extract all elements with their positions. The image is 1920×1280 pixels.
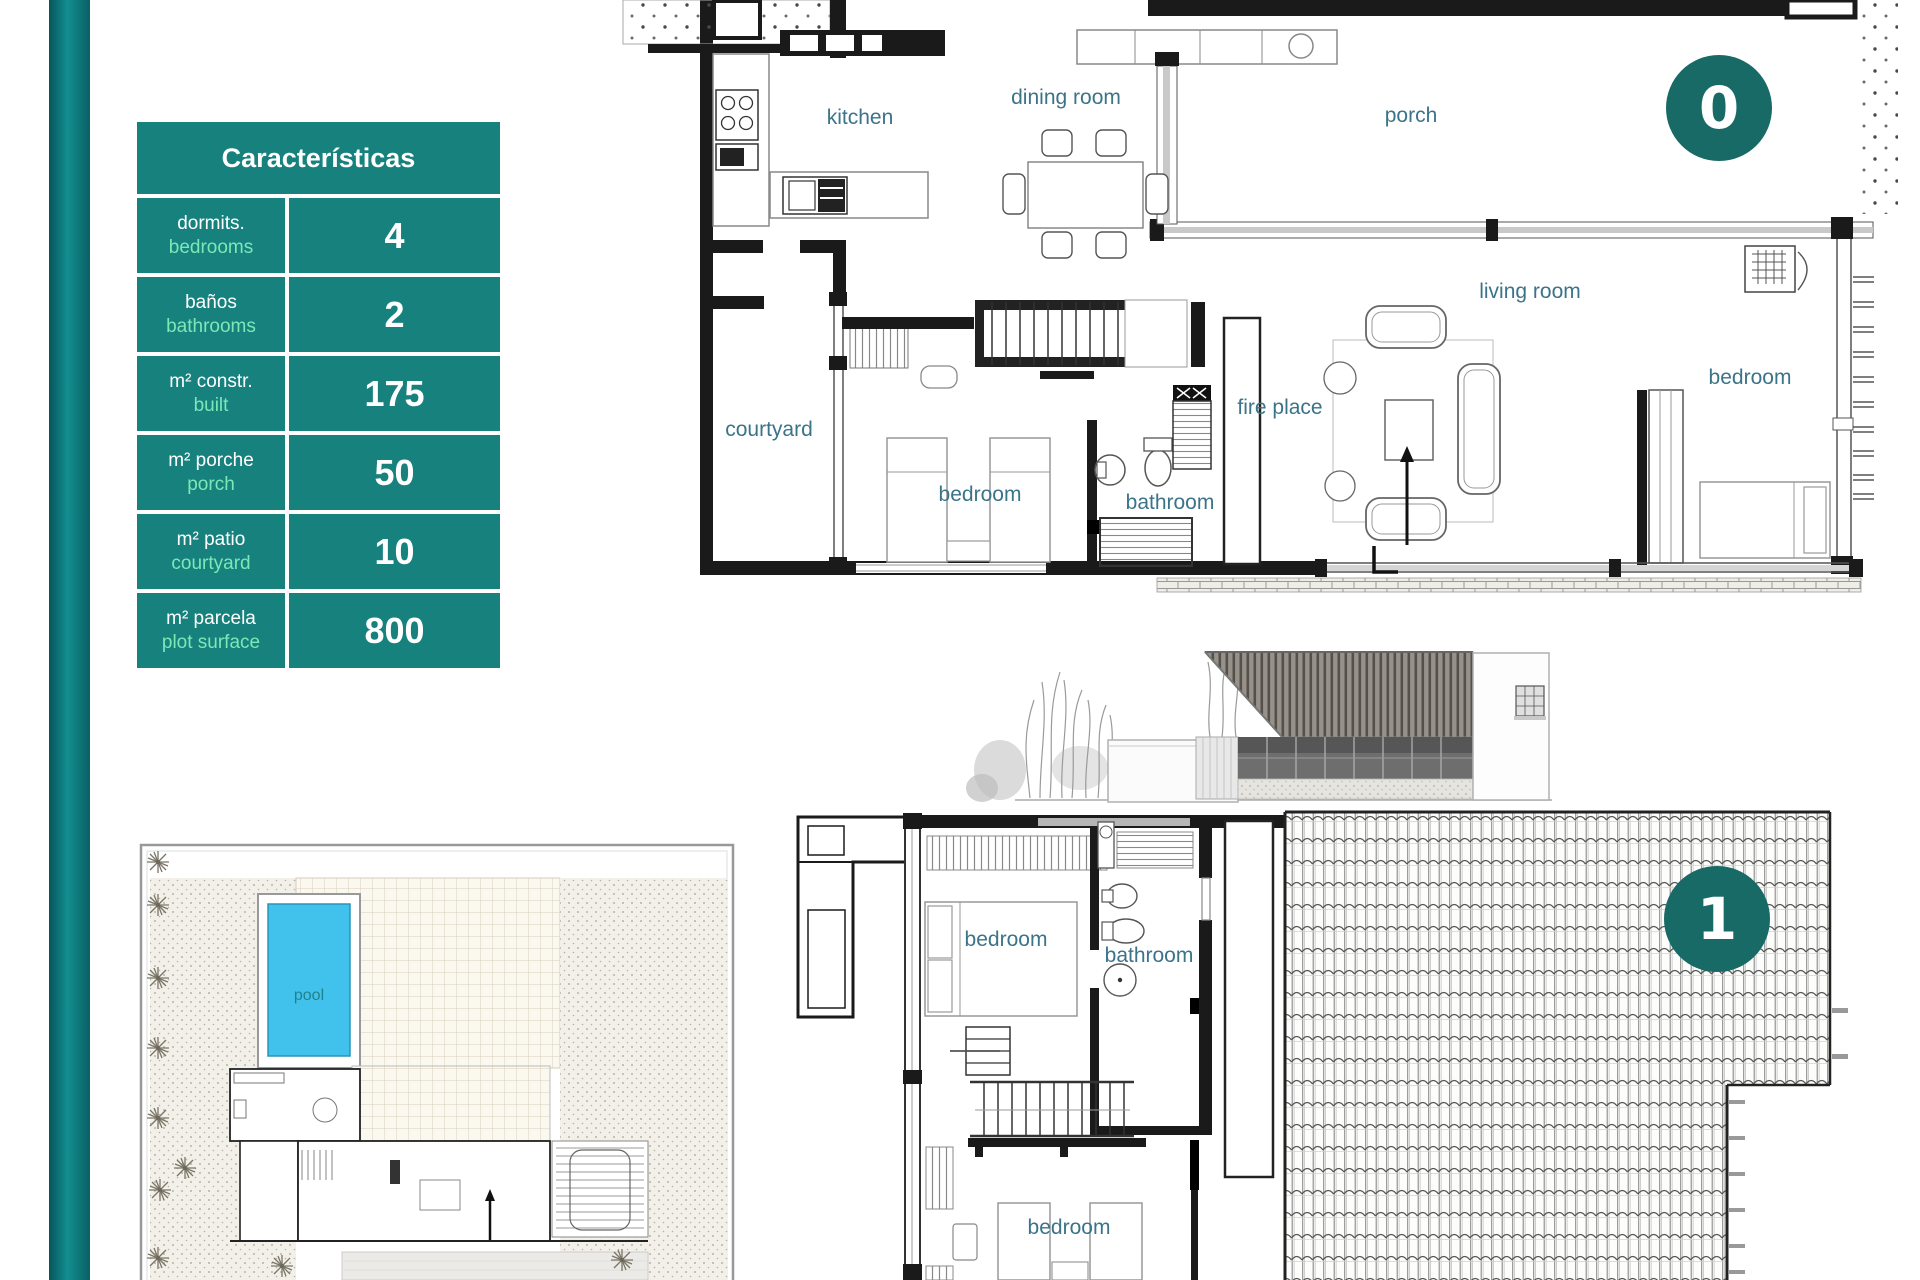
row-label: m² constr. built	[137, 356, 285, 431]
label-english: bathrooms	[166, 315, 256, 339]
room-label-bathroom-1: bathroom	[1105, 944, 1194, 968]
row-label: dormits. bedrooms	[137, 198, 285, 273]
row-value: 4	[289, 198, 500, 273]
room-label-kitchen: kitchen	[827, 106, 894, 130]
characteristics-table: Características dormits. bedrooms 4 baño…	[137, 122, 500, 672]
room-label-bedroom-bottom: bedroom	[1028, 1216, 1111, 1240]
table-row: m² porche porch 50	[137, 435, 500, 510]
site-plan	[141, 845, 733, 1280]
row-value: 175	[289, 356, 500, 431]
room-label-bedroom-top: bedroom	[965, 928, 1048, 952]
table-row: m² constr. built 175	[137, 356, 500, 431]
plan-sheet: Características dormits. bedrooms 4 baño…	[0, 0, 1920, 1280]
table-row: baños bathrooms 2	[137, 277, 500, 352]
floor1-badge: 1	[1664, 866, 1770, 972]
room-label-bedroom-left: bedroom	[939, 483, 1022, 507]
room-label-living-room: living room	[1479, 280, 1581, 304]
label-spanish: m² parcela	[166, 607, 256, 631]
label-english: porch	[187, 473, 235, 497]
floor0-badge: 0	[1666, 55, 1772, 161]
row-label: baños bathrooms	[137, 277, 285, 352]
label-spanish: m² patio	[177, 528, 246, 552]
row-value: 10	[289, 514, 500, 589]
table-row: m² patio courtyard 10	[137, 514, 500, 589]
table-row: m² parcela plot surface 800	[137, 593, 500, 668]
table-title: Características	[137, 122, 500, 194]
row-label: m² parcela plot surface	[137, 593, 285, 668]
room-label-fire-place: fire place	[1237, 396, 1322, 420]
row-value: 2	[289, 277, 500, 352]
room-label-dining-room: dining room	[1011, 86, 1121, 110]
label-spanish: m² constr.	[169, 370, 252, 394]
room-label-porch: porch	[1385, 104, 1438, 128]
elevation-sketch	[966, 652, 1552, 802]
row-value: 800	[289, 593, 500, 668]
label-english: courtyard	[171, 552, 250, 576]
pool-label: pool	[294, 987, 324, 1005]
row-value: 50	[289, 435, 500, 510]
label-spanish: dormits.	[177, 212, 245, 236]
label-english: plot surface	[162, 631, 260, 655]
room-label-bathroom-0: bathroom	[1126, 491, 1215, 515]
accent-sidebar-bar	[49, 0, 90, 1280]
row-label: m² patio courtyard	[137, 514, 285, 589]
label-spanish: baños	[185, 291, 237, 315]
label-english: built	[194, 394, 229, 418]
row-label: m² porche porch	[137, 435, 285, 510]
table-row: dormits. bedrooms 4	[137, 198, 500, 273]
label-english: bedrooms	[169, 236, 254, 260]
room-label-courtyard: courtyard	[725, 418, 813, 442]
label-spanish: m² porche	[168, 449, 254, 473]
room-label-bedroom-right: bedroom	[1709, 366, 1792, 390]
